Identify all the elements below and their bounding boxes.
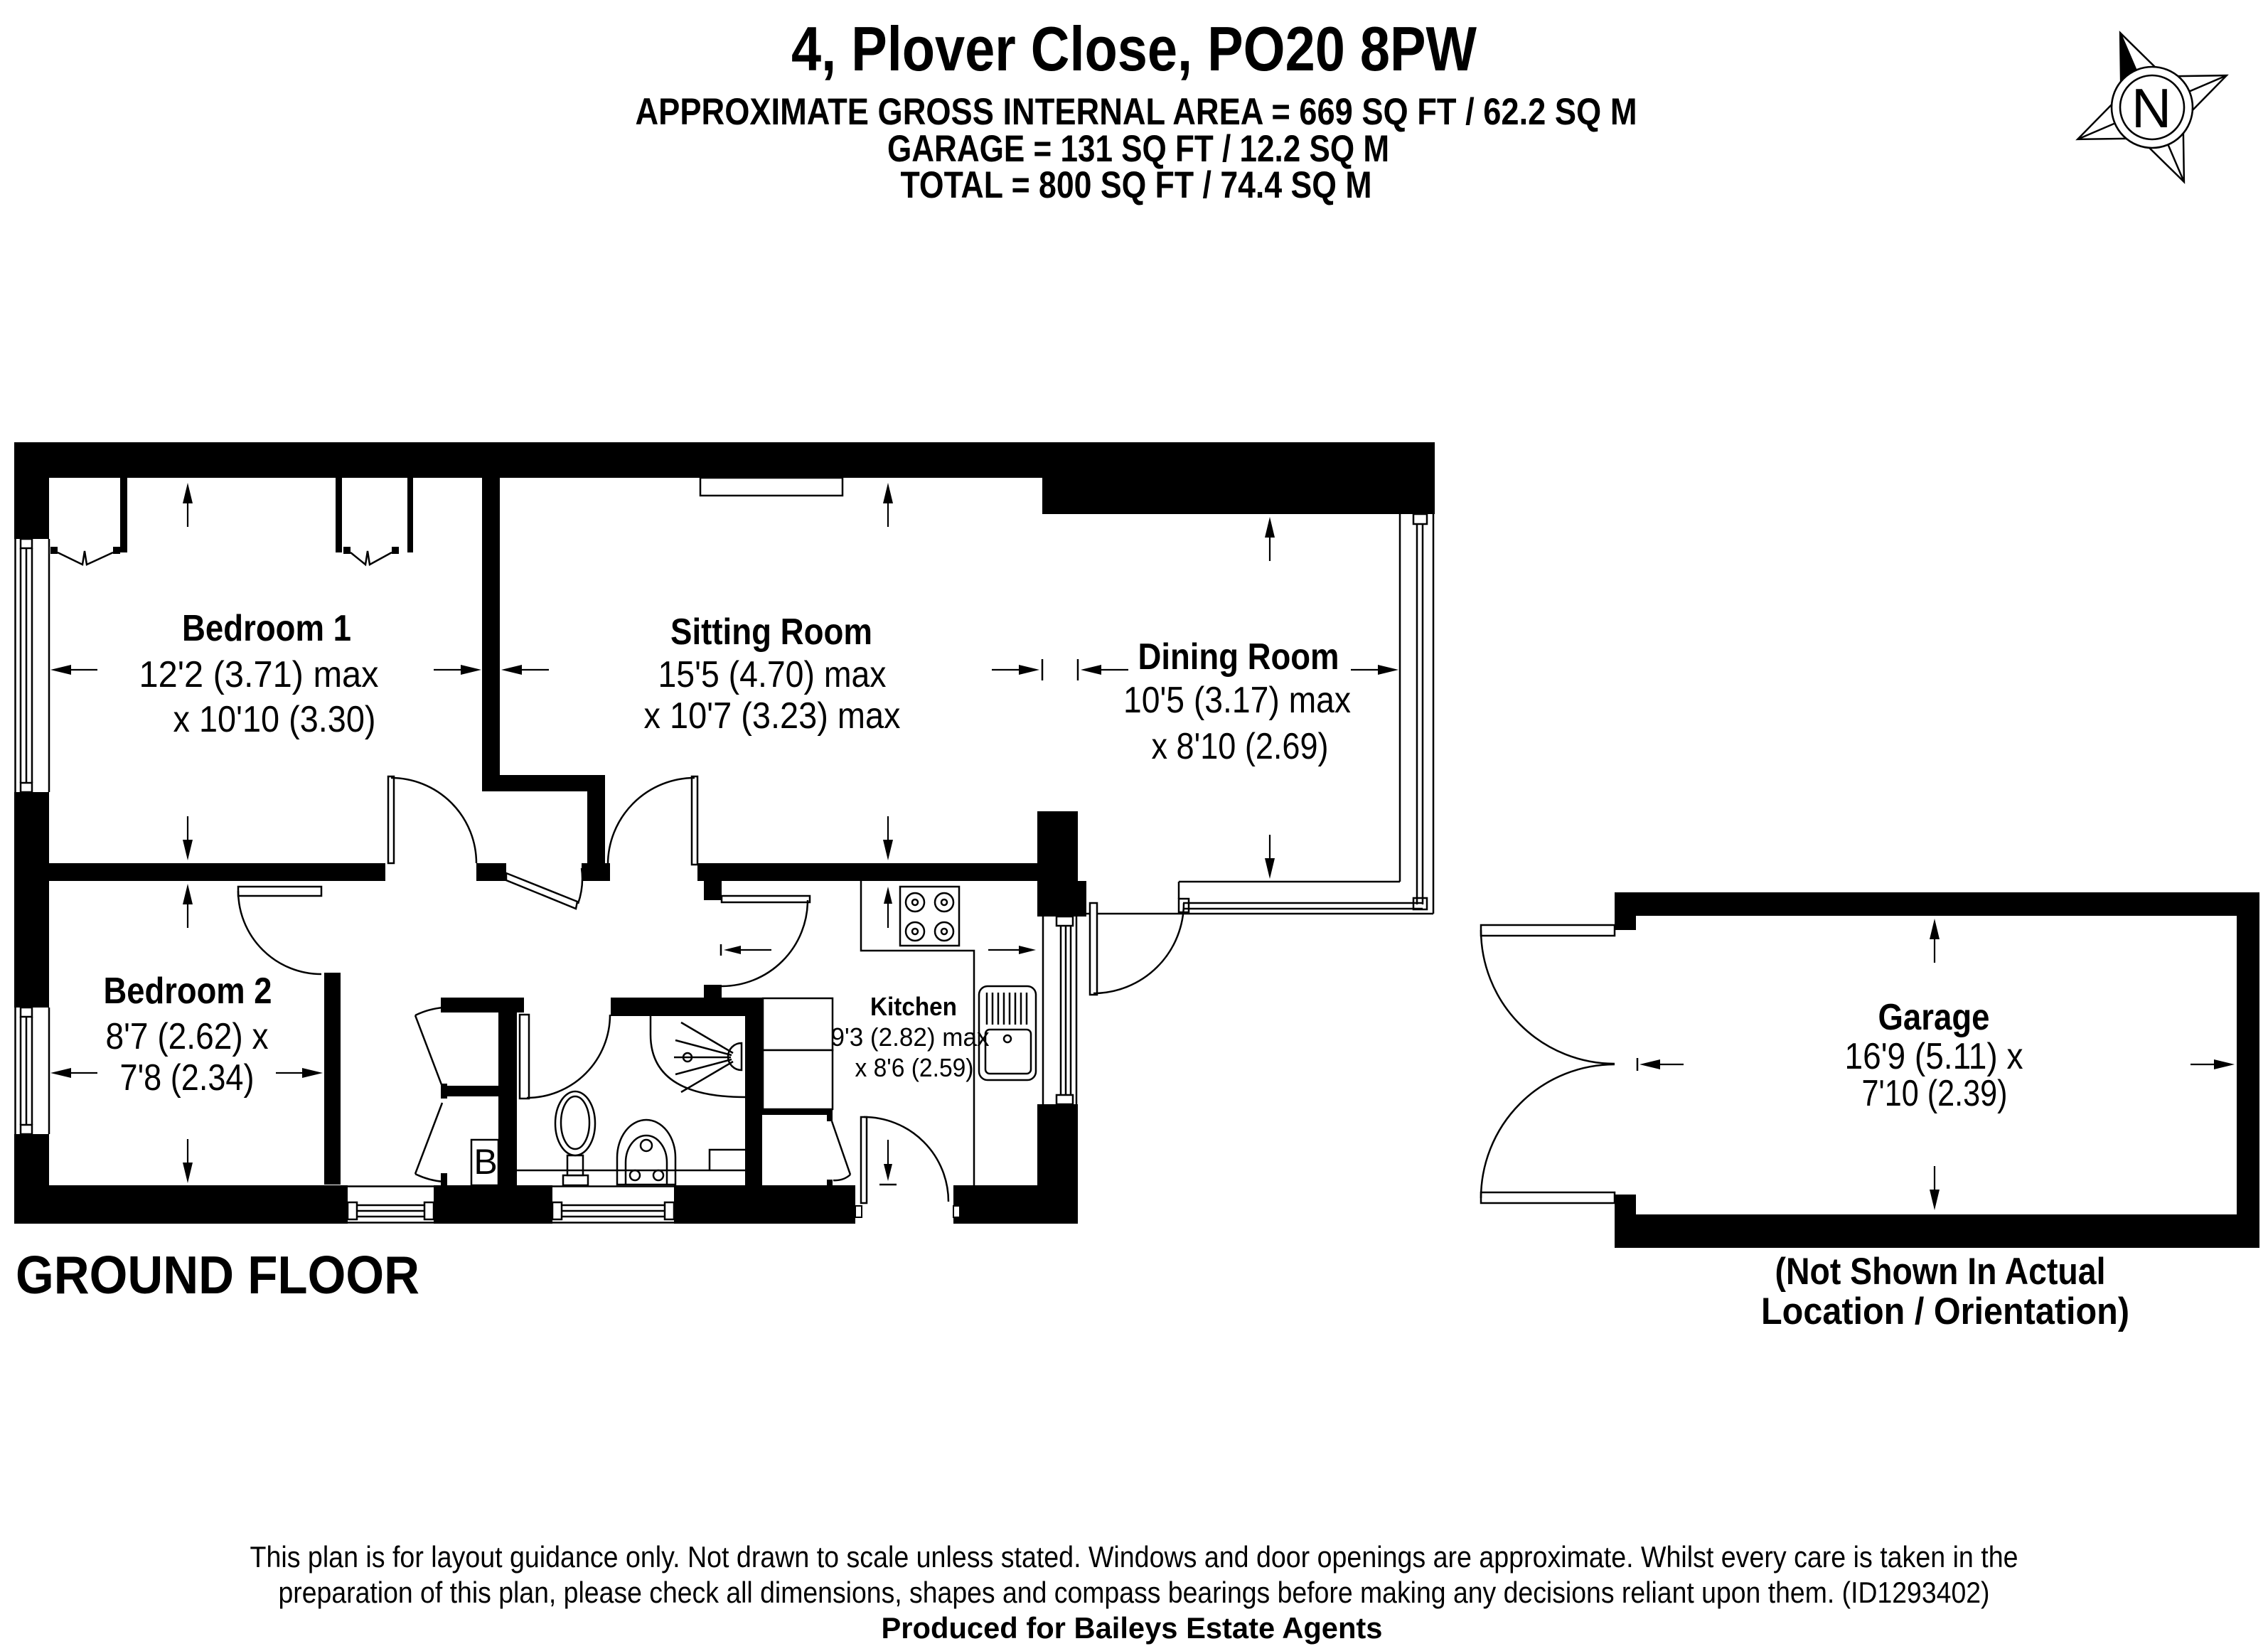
svg-text:preparation of this plan, plea: preparation of this plan, please check a…	[279, 1576, 1990, 1609]
svg-text:Dining Room: Dining Room	[1138, 636, 1339, 678]
svg-text:Sitting Room: Sitting Room	[670, 611, 872, 653]
svg-text:x 8'10 (2.69): x 8'10 (2.69)	[1152, 726, 1329, 767]
svg-text:Produced for Baileys Estate Ag: Produced for Baileys Estate Agents	[882, 1611, 1383, 1645]
svg-text:x 8'6 (2.59): x 8'6 (2.59)	[855, 1053, 974, 1082]
svg-text:Bedroom 1: Bedroom 1	[182, 608, 351, 649]
svg-text:7'10 (2.39): 7'10 (2.39)	[1862, 1073, 2008, 1114]
svg-text:16'9 (5.11) x: 16'9 (5.11) x	[1845, 1036, 2023, 1077]
svg-text:x 10'7 (3.23) max: x 10'7 (3.23) max	[644, 695, 901, 737]
svg-text:10'5 (3.17) max: 10'5 (3.17) max	[1123, 680, 1351, 721]
svg-text:Kitchen: Kitchen	[870, 992, 957, 1021]
svg-text:GROUND FLOOR: GROUND FLOOR	[16, 1245, 419, 1305]
svg-text:4, Plover Close, PO20 8PW: 4, Plover Close, PO20 8PW	[791, 14, 1477, 84]
svg-text:Location / Orientation): Location / Orientation)	[1761, 1291, 2129, 1332]
svg-text:Garage: Garage	[1878, 997, 1990, 1038]
svg-text:7'8 (2.34): 7'8 (2.34)	[120, 1057, 255, 1099]
svg-text:B: B	[474, 1142, 497, 1182]
svg-text:9'3 (2.82) max: 9'3 (2.82) max	[831, 1022, 990, 1052]
svg-text:TOTAL = 800 SQ FT / 74.4 SQ M: TOTAL = 800 SQ FT / 74.4 SQ M	[901, 164, 1372, 206]
svg-text:APPROXIMATE GROSS INTERNAL ARE: APPROXIMATE GROSS INTERNAL AREA = 669 SQ…	[636, 91, 1637, 133]
svg-text:Bedroom 2: Bedroom 2	[104, 971, 272, 1012]
svg-text:This plan is for layout guidan: This plan is for layout guidance only. N…	[250, 1540, 2018, 1573]
svg-text:8'7 (2.62) x: 8'7 (2.62) x	[106, 1016, 269, 1057]
svg-text:x 10'10 (3.30): x 10'10 (3.30)	[173, 699, 376, 740]
svg-text:(Not Shown In Actual: (Not Shown In Actual	[1775, 1251, 2106, 1293]
svg-text:N: N	[2131, 77, 2171, 139]
svg-text:12'2 (3.71) max: 12'2 (3.71) max	[139, 654, 379, 695]
svg-text:15'5 (4.70) max: 15'5 (4.70) max	[658, 654, 887, 695]
